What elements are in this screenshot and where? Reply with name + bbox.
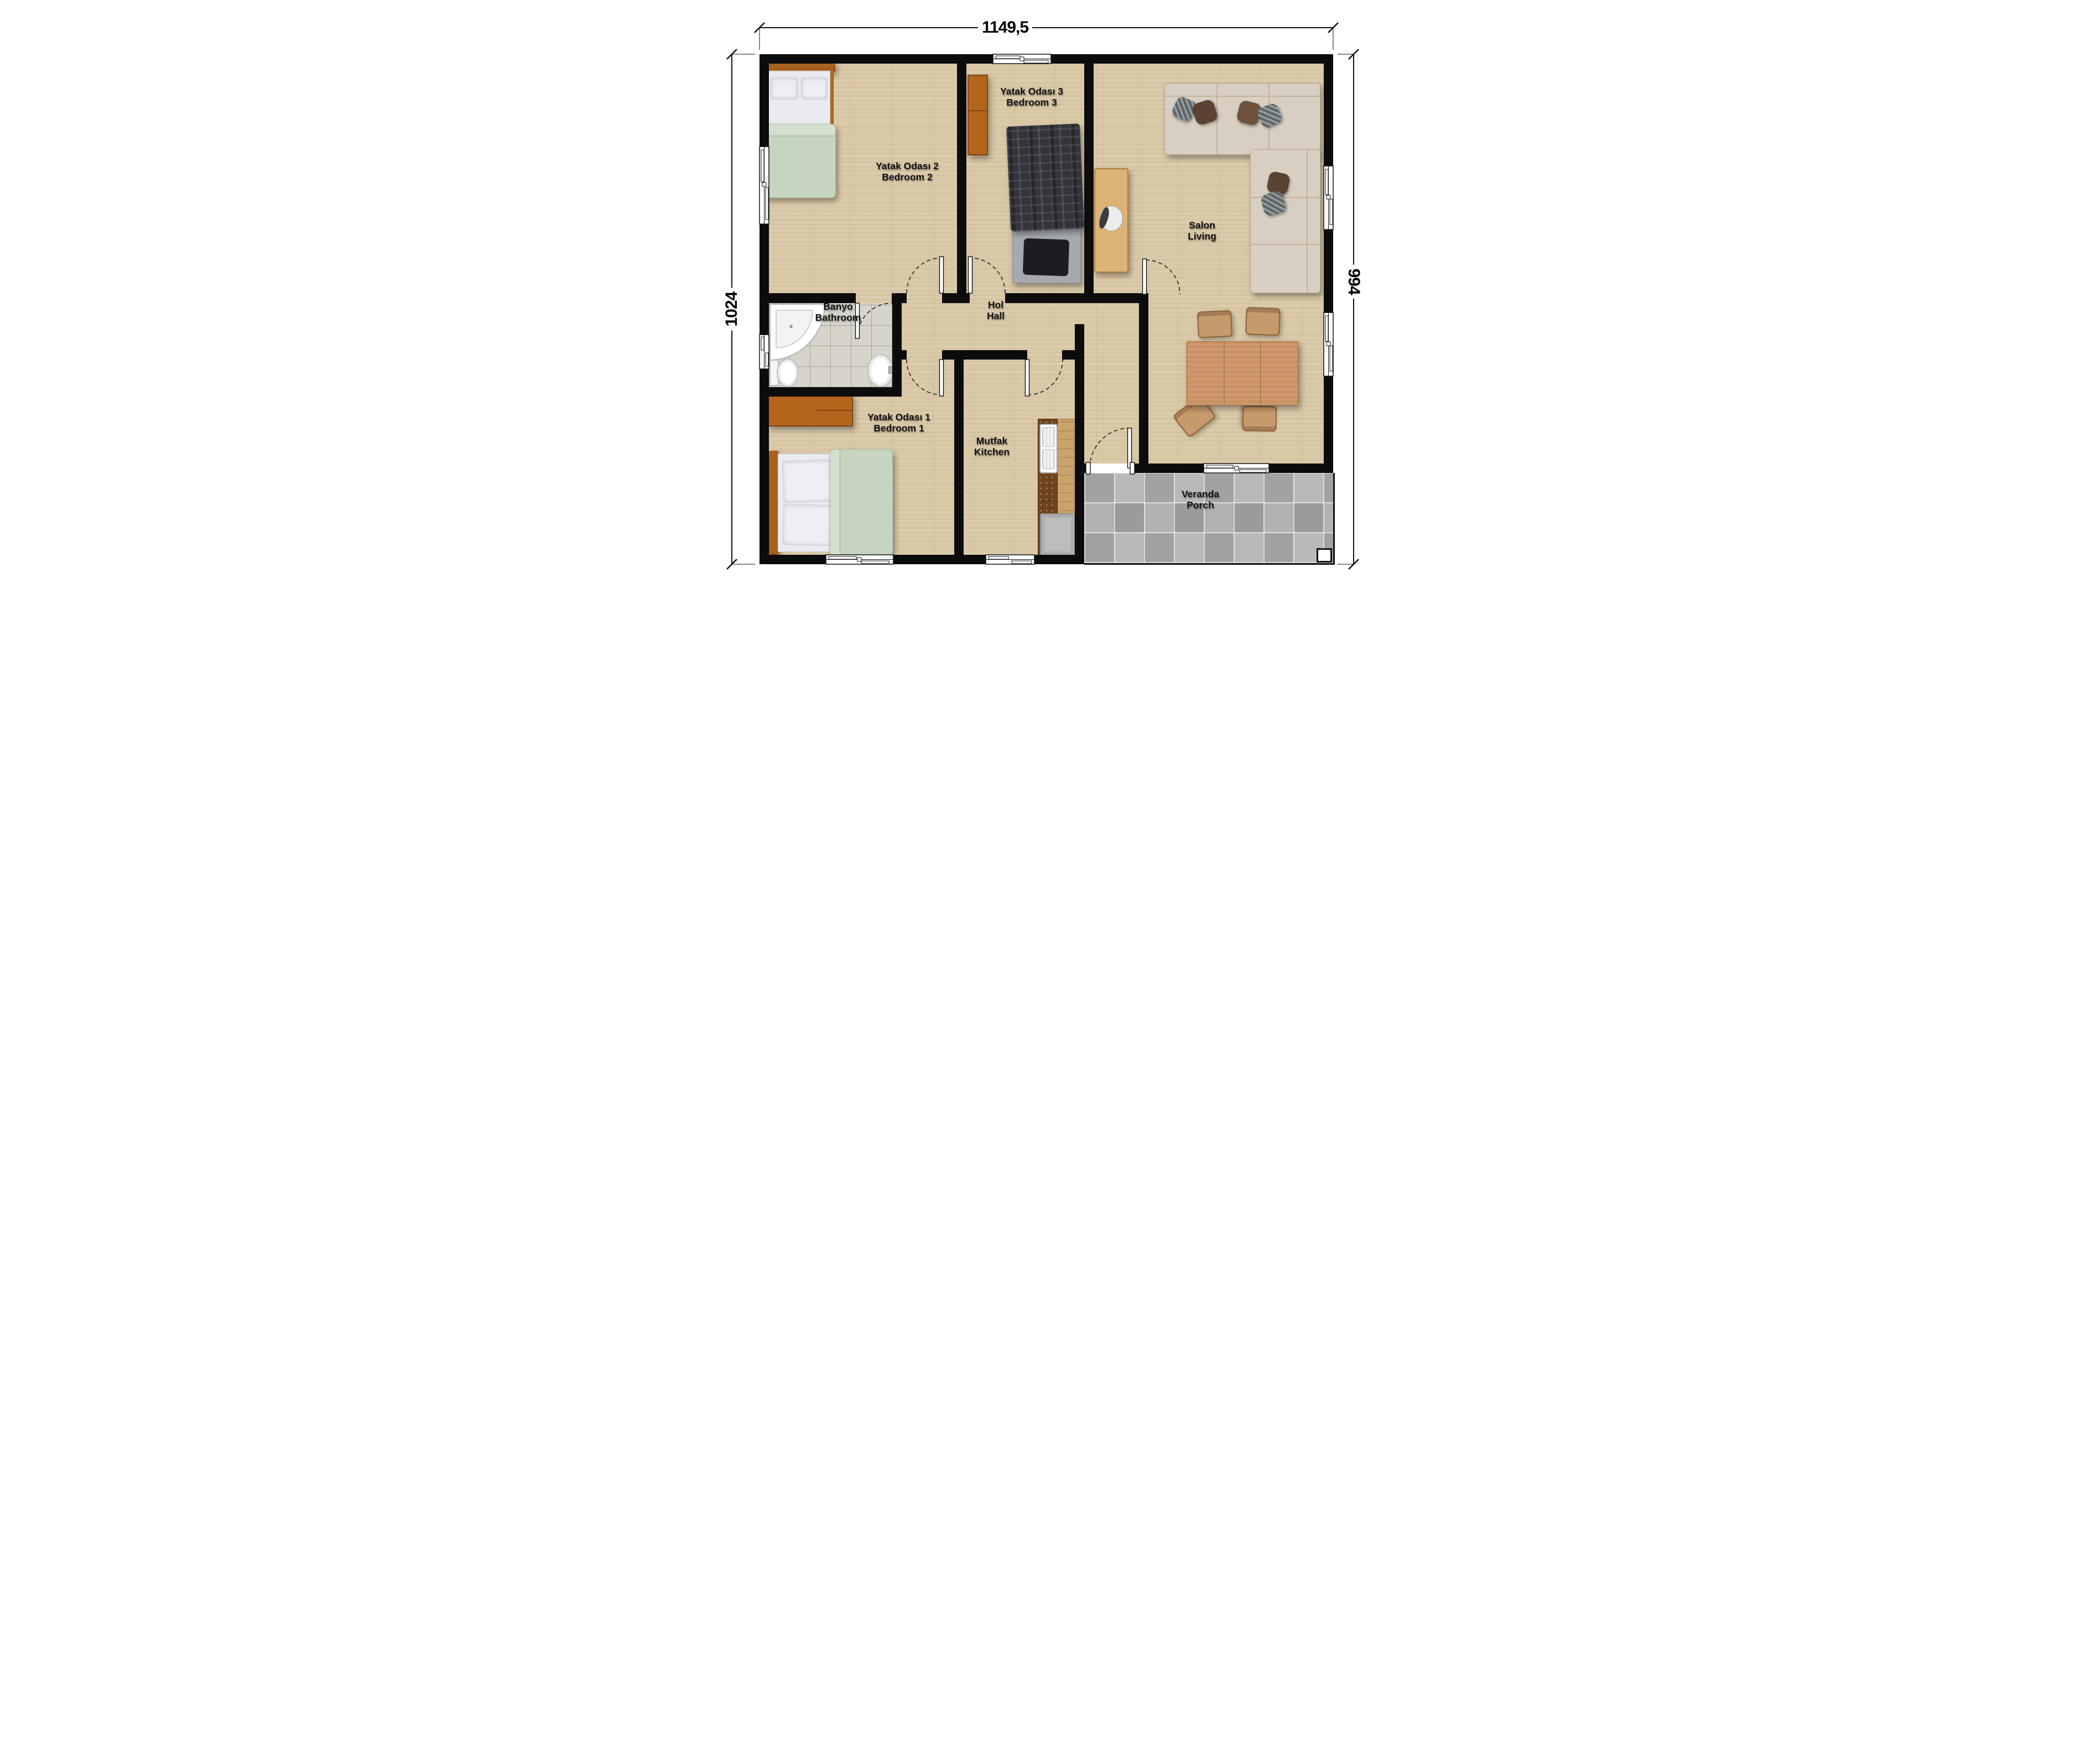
- door-arc-icon: [907, 360, 944, 396]
- door-arc-icon: [969, 257, 1006, 293]
- room-name-en: Bedroom 3: [1006, 97, 1057, 108]
- floor-plan: Yatak Odası 2 Bedroom 2 Yatak Odası 3 Be…: [697, 0, 1394, 588]
- window-icon: [760, 335, 769, 369]
- room-name-en: Bedroom 1: [873, 423, 924, 434]
- window-icon: [1324, 313, 1333, 376]
- room-name-en: Living: [1188, 231, 1216, 242]
- room-name-tr: Yatak Odası 1: [867, 412, 930, 423]
- room-name-tr: Hol: [988, 299, 1003, 310]
- room-name-en: Bathroom: [815, 312, 861, 323]
- window-icon: [1324, 166, 1333, 230]
- door-arc-icon: [1086, 428, 1135, 474]
- room-name-tr: Yatak Odası 2: [876, 160, 939, 171]
- room-name-en: Bedroom 2: [882, 171, 932, 183]
- room-name-tr: Yatak Odası 3: [1000, 86, 1063, 97]
- dimension-right: 994: [1344, 264, 1363, 298]
- window-icon: [1204, 464, 1269, 473]
- dimension-left: 1024: [722, 288, 741, 331]
- room-label-kitchen: Mutfak Kitchen: [974, 436, 1010, 458]
- dimension-line-right: [1338, 49, 1359, 569]
- room-label-porch: Veranda Porch: [1182, 489, 1219, 511]
- room-label-bathroom: Banyo Bathroom: [815, 301, 861, 324]
- room-label-bedroom1: Yatak Odası 1 Bedroom 1: [867, 412, 930, 434]
- room-label-bedroom2: Yatak Odası 2 Bedroom 2: [876, 161, 939, 183]
- room-name-tr: Mutfak: [976, 435, 1007, 446]
- room-name-tr: Veranda: [1182, 488, 1219, 499]
- room-name-tr: Banyo: [823, 301, 852, 312]
- room-label-living: Salon Living: [1188, 220, 1216, 242]
- door-arc-icon: [907, 257, 944, 293]
- room-name-tr: Salon: [1189, 220, 1215, 231]
- room-label-hall: Hol Hall: [987, 300, 1005, 322]
- room-name-en: Porch: [1187, 499, 1214, 511]
- room-name-en: Kitchen: [974, 446, 1010, 457]
- window-icon: [993, 54, 1051, 64]
- room-name-en: Hall: [987, 310, 1005, 321]
- window-icon: [986, 555, 1034, 564]
- door-arc-icon: [1026, 360, 1063, 396]
- dimension-line-top: [755, 23, 1338, 50]
- dimension-top: 1149,5: [978, 18, 1032, 37]
- door-arc-icon: [1143, 259, 1180, 294]
- room-label-bedroom3: Yatak Odası 3 Bedroom 3: [1000, 86, 1063, 108]
- window-icon: [826, 555, 893, 564]
- window-icon: [760, 147, 769, 224]
